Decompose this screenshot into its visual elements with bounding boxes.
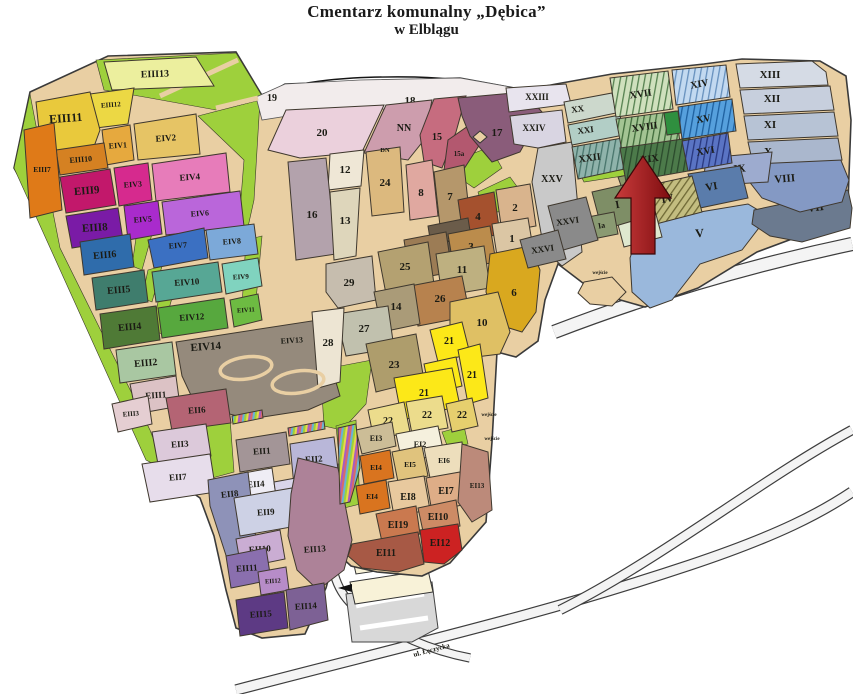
region-label-EII13: EII13	[303, 543, 326, 555]
region-label-2: 2	[512, 202, 518, 214]
region-label-EII11: EII11	[236, 562, 259, 574]
region-label-EI4a: EI4	[370, 463, 382, 472]
region-label-EIV8: EIV8	[222, 236, 241, 246]
region-label-EIV12: EIV12	[179, 311, 205, 323]
region-label-EI8: EI8	[400, 492, 416, 503]
region-label-EIV11: EIV11	[237, 306, 255, 314]
region-label-14: 14	[391, 301, 403, 313]
region-label-28: 28	[323, 337, 335, 349]
region-label-EII1: EII1	[253, 445, 272, 456]
region-label-6: 6	[511, 287, 517, 299]
region-label-EIII8: EIII8	[82, 221, 109, 235]
region-label-27: 27	[359, 323, 371, 335]
region-label-EI3: EI3	[370, 434, 382, 443]
region-label-XX: XX	[570, 103, 585, 115]
region-label-22b: 22	[422, 410, 432, 421]
region-label-29: 29	[344, 277, 356, 289]
region-label-10: 10	[477, 317, 489, 329]
region-label-4: 4	[475, 211, 481, 223]
region-label-EIV7: EIV7	[168, 240, 187, 250]
region-label-EII14: EII14	[294, 600, 317, 612]
region-label-22c: 22	[457, 410, 467, 421]
region-label-15a: 15a	[454, 150, 465, 158]
region-label-EI6: EI6	[438, 456, 450, 465]
region-label-VIII: VIII	[774, 172, 796, 186]
region-label-12: 12	[340, 164, 352, 176]
region-label-EIV4: EIV4	[179, 171, 201, 182]
region-label-EIV3: EIV3	[123, 179, 142, 189]
region-label-XXV: XXV	[541, 174, 563, 185]
region-label-17: 17	[492, 127, 504, 139]
region-label-XXIII: XXIII	[525, 92, 549, 102]
region-label-EIII6: EIII6	[93, 249, 117, 262]
region-label-21a: 21	[444, 336, 454, 347]
region-label-EII6: EII6	[188, 404, 207, 415]
region-label-EIV2: EIV2	[155, 132, 177, 143]
map-label: wejście	[592, 271, 608, 276]
region-label-EIII12: EIII12	[101, 100, 122, 109]
region-label-XII: XII	[764, 93, 781, 105]
region-label-EIII4: EIII4	[118, 321, 142, 334]
region-label-25: 25	[400, 261, 412, 273]
region-label-V: V	[695, 226, 705, 241]
region-label-XI: XI	[764, 119, 776, 131]
region-label-EIV5: EIV5	[133, 214, 152, 224]
region-label-15: 15	[432, 132, 442, 143]
region-label-NN: NN	[397, 123, 412, 134]
region-label-VI: VI	[704, 180, 718, 194]
region-label-EIV1: EIV1	[108, 140, 127, 150]
map-label: wejście	[481, 413, 497, 418]
region-XI	[744, 112, 838, 140]
region-label-EI10: EI10	[428, 512, 449, 523]
region-label-1: 1	[509, 233, 515, 245]
region-label-EIII7: EIII7	[33, 165, 51, 174]
region-label-16: 16	[307, 209, 319, 221]
region-label-EI5: EI5	[404, 460, 416, 469]
region-label-EII9: EII9	[257, 506, 276, 517]
region-XIII	[736, 61, 828, 88]
region-label-XXIV: XXIV	[522, 123, 546, 133]
region-label-XIII: XIII	[760, 69, 781, 81]
region-label-EI7: EI7	[438, 486, 454, 497]
region-label-EI12: EI12	[430, 538, 451, 549]
region-label-EI4b: EI4	[366, 492, 378, 501]
region-label-7: 7	[447, 191, 453, 203]
region-XII	[740, 86, 834, 114]
region-label-11: 11	[457, 264, 467, 276]
region-label-23: 23	[389, 359, 401, 371]
region-label-19: 19	[267, 93, 277, 104]
region-label-EIII3: EIII3	[122, 409, 139, 418]
region-label-8: 8	[418, 187, 424, 199]
region-label-EI11: EI11	[376, 548, 396, 559]
region-label-EIII5: EIII5	[107, 284, 131, 297]
cemetery-map-page: Cmentarz komunalny „Dębica” w Elblągu EI…	[0, 0, 853, 694]
region-label-EIV10: EIV10	[174, 276, 200, 288]
map-label: wejście	[484, 437, 500, 442]
region-label-EII15: EII15	[249, 608, 272, 620]
region-label-EII12: EII12	[265, 577, 281, 585]
region-label-EIV6: EIV6	[190, 208, 209, 218]
region-label-EIII9: EIII9	[73, 184, 100, 198]
region-label-EIV14: EIV14	[190, 340, 222, 354]
region-label-13: 13	[340, 215, 352, 227]
region-label-EIII2: EIII2	[134, 357, 158, 370]
region-label-EI19: EI19	[388, 520, 409, 531]
region-label-21d: 21	[419, 388, 429, 399]
region-label-EII7: EII7	[169, 471, 188, 482]
cemetery-map: EIII13EIII12EIII11EIV1EIV2EIII10EIII7EII…	[0, 0, 853, 694]
region-label-EII3: EII3	[171, 438, 190, 449]
region-label-EI13: EI13	[470, 482, 485, 490]
region-label-EIII13: EIII13	[141, 69, 170, 81]
map-canvas: EIII13EIII12EIII11EIV1EIV2EIII10EIII7EII…	[0, 0, 853, 694]
region-label-24: 24	[380, 177, 392, 189]
map-label: EIV13	[280, 335, 303, 346]
region-label-20: 20	[317, 127, 329, 139]
region-greenblock	[664, 111, 681, 135]
region-label-EIV9: EIV9	[233, 272, 250, 281]
map-label: DN	[380, 147, 390, 154]
region-label-21c: 21	[467, 370, 477, 381]
region-label-26: 26	[435, 293, 447, 305]
